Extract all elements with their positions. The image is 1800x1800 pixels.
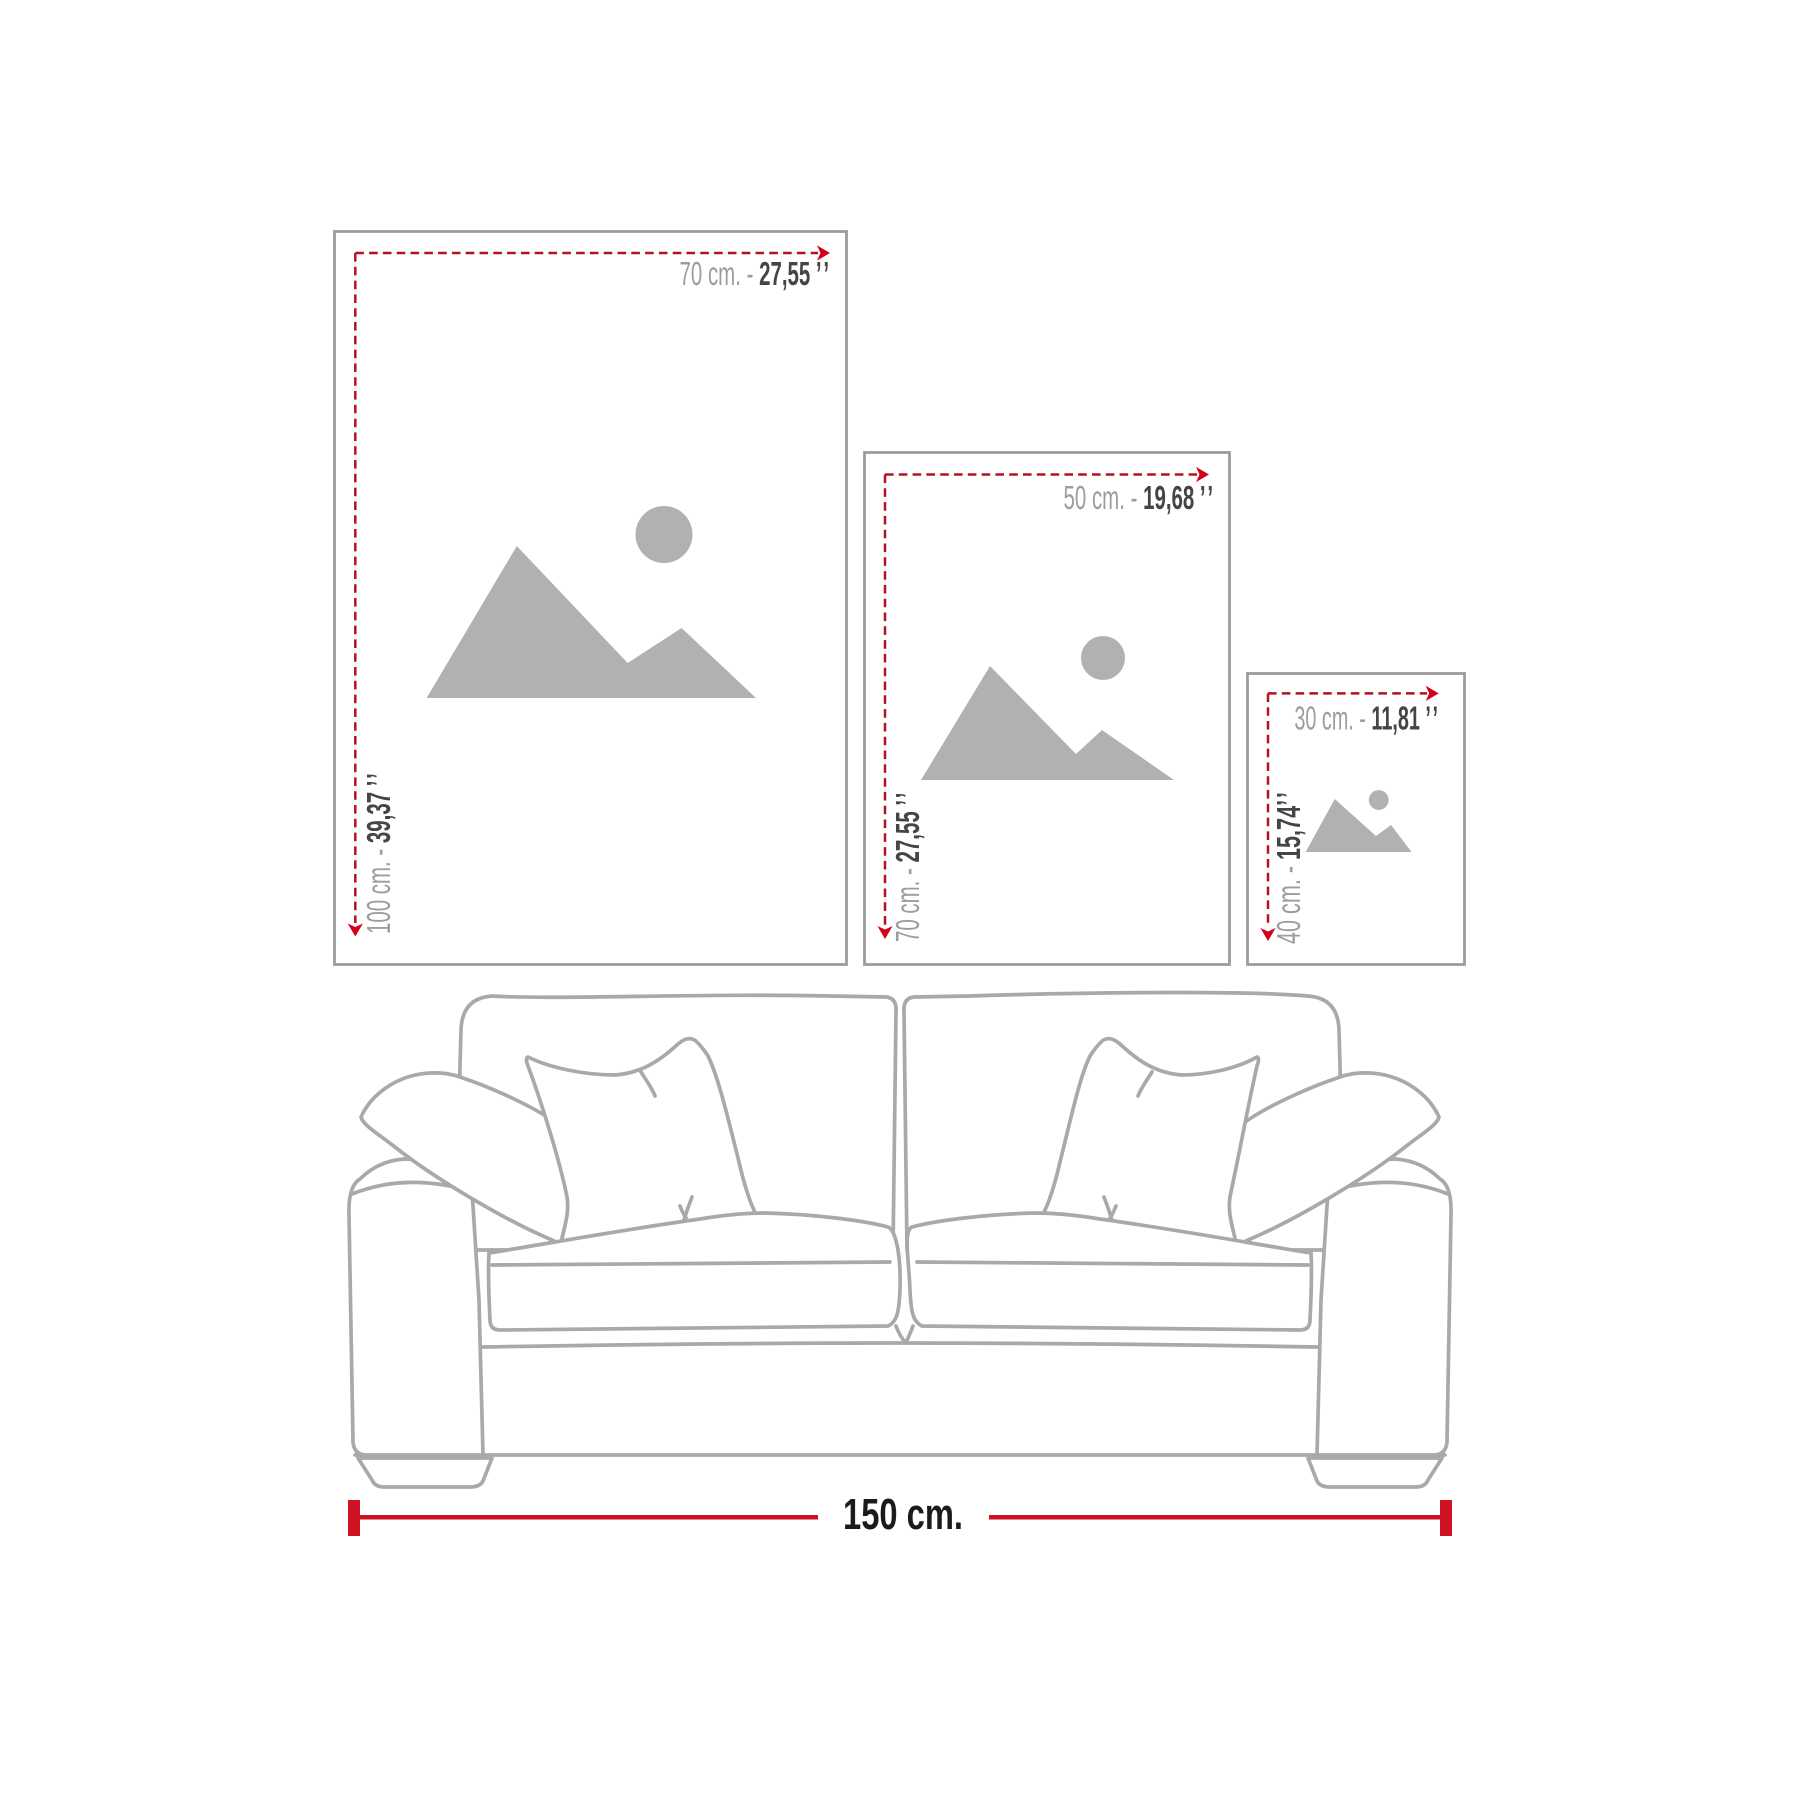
svg-text:30 cm. - 11,81 ’ ’: 30 cm. - 11,81 ’ ’	[1294, 699, 1438, 737]
svg-text:50 cm. - 19,68 ’ ’: 50 cm. - 19,68 ’ ’	[1064, 479, 1213, 516]
svg-text:100 cm. - 39,37 ’ ’: 100 cm. - 39,37 ’ ’	[360, 773, 397, 934]
svg-text:40 cm. - 15,74’ ’: 40 cm. - 15,74’ ’	[1270, 792, 1307, 944]
svg-text:70 cm. - 27,55 ’ ’: 70 cm. - 27,55 ’ ’	[889, 793, 926, 942]
svg-text:150 cm.: 150 cm.	[843, 1490, 963, 1539]
svg-text:70 cm. - 27,55 ’ ’: 70 cm. - 27,55 ’ ’	[680, 255, 829, 292]
